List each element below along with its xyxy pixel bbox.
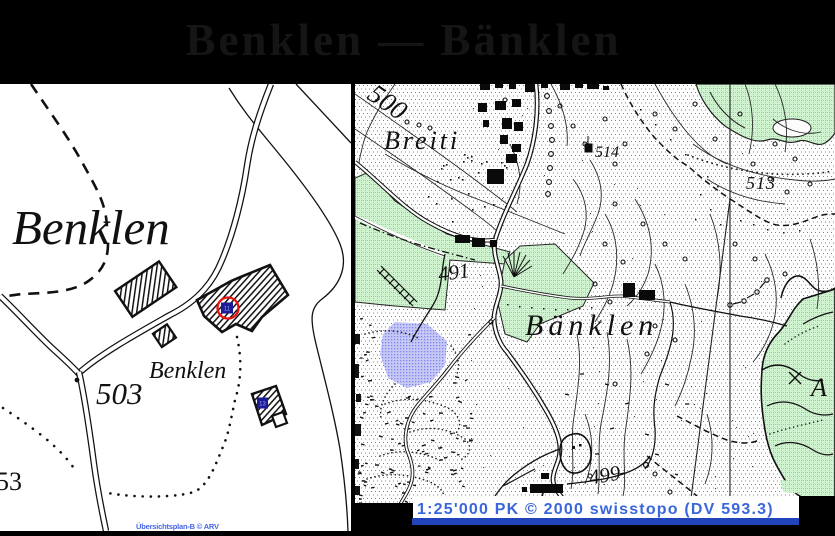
svg-text:Bänklen: Bänklen <box>525 309 658 342</box>
svg-text:53: 53 <box>0 467 22 496</box>
svg-text:11: 11 <box>224 307 231 313</box>
svg-text:491: 491 <box>436 258 471 286</box>
svg-text:13: 13 <box>259 402 266 408</box>
svg-text:503: 503 <box>96 376 143 411</box>
svg-text:Benklen: Benklen <box>149 358 226 384</box>
svg-text:Breiti: Breiti <box>384 126 460 155</box>
svg-text:Benklen: Benklen <box>12 200 170 255</box>
svg-text:A: A <box>809 373 827 402</box>
svg-text:1:25'000 PK © 2000 swisstopo (: 1:25'000 PK © 2000 swisstopo (DV 593.3) <box>417 501 774 518</box>
svg-text:514: 514 <box>595 144 619 161</box>
svg-text:Übersichtsplan-B © ARV: Übersichtsplan-B © ARV <box>136 522 219 531</box>
svg-text:513: 513 <box>746 173 776 193</box>
